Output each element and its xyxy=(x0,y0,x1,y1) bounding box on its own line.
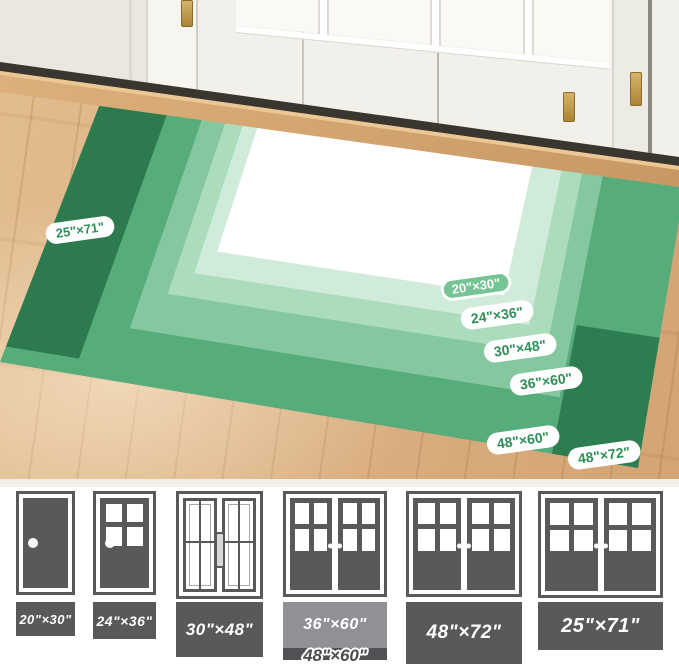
window-pane xyxy=(295,529,309,550)
window-pane xyxy=(418,529,435,550)
door-panel xyxy=(23,498,68,588)
door-window xyxy=(418,503,456,551)
door-window xyxy=(295,503,327,551)
french-door-panel xyxy=(222,498,256,592)
panel-mullion-horizontal xyxy=(225,541,253,543)
doormat: 25"×71" xyxy=(538,602,663,650)
sliding-door-panel xyxy=(604,498,657,591)
door-window xyxy=(343,503,375,551)
window-pane xyxy=(106,504,122,522)
window-pane xyxy=(574,530,593,552)
mat-size-label: 36"×60" xyxy=(303,616,367,634)
sliding-door-panel xyxy=(338,498,380,590)
size-chart-column: 36"×60"48"×60" xyxy=(283,491,387,597)
sliding-door-panel xyxy=(467,498,515,590)
window-pane xyxy=(362,529,376,550)
rug-size-overlay xyxy=(0,0,679,487)
door-diagram-single-window xyxy=(93,491,156,595)
door-knob xyxy=(28,538,38,548)
mat-area: 48"×72" xyxy=(406,602,522,664)
window-pane xyxy=(127,527,143,545)
window-pane xyxy=(418,503,435,524)
door-handle-dots xyxy=(594,544,608,549)
window-pane xyxy=(494,503,511,524)
mat-size-label: 30"×48" xyxy=(186,620,253,640)
door-diagram-sliding-double xyxy=(406,491,522,597)
door-size-chart: 20"×30"24"×36"30"×48"36"×60"48"×60"48"×7… xyxy=(0,487,679,671)
doormat: 36"×60" xyxy=(283,602,387,648)
window-pane xyxy=(314,529,328,550)
door-diagram-sliding-double xyxy=(283,491,387,597)
mat-area: 30"×48" xyxy=(176,602,263,657)
window-pane xyxy=(632,530,651,552)
doormat: 48"×72" xyxy=(406,602,522,664)
door-window xyxy=(550,503,593,551)
mat-size-label: 24"×36" xyxy=(96,613,152,629)
door-window xyxy=(609,503,652,551)
window-pane xyxy=(550,530,569,552)
product-image: 25"×71"20"×30"24"×36"30"×48"36"×60"48"×6… xyxy=(0,0,679,671)
handle-dot xyxy=(594,544,599,549)
handle-dot xyxy=(328,543,333,548)
window-pane xyxy=(343,503,357,524)
size-chart-column: 25"×71" xyxy=(538,491,663,598)
mat-size-label-behind: 48"×60" xyxy=(283,646,387,666)
window-pane xyxy=(440,503,457,524)
sliding-door-panels xyxy=(413,498,515,590)
window-pane xyxy=(440,529,457,550)
sliding-door-panels xyxy=(290,498,380,590)
door-window xyxy=(472,503,510,551)
mat-size-label: 20"×30" xyxy=(19,612,71,627)
size-chart-column: 24"×36" xyxy=(93,491,156,595)
window-pane xyxy=(574,503,593,525)
mat-area: 24"×36" xyxy=(93,602,156,639)
window-pane xyxy=(609,503,628,525)
window-pane xyxy=(343,529,357,550)
panel-mullion-vertical xyxy=(238,501,240,589)
door-handle xyxy=(215,532,225,568)
handle-dot xyxy=(603,544,608,549)
panel-mullion-vertical xyxy=(199,501,201,589)
window-pane xyxy=(127,504,143,522)
french-door-panels xyxy=(183,498,256,592)
mat-size-label: 48"×72" xyxy=(427,622,502,644)
door-diagram-sliding-double xyxy=(538,491,663,598)
window-pane xyxy=(295,503,309,524)
mat-size-label: 25"×71" xyxy=(561,615,640,638)
window-pane xyxy=(609,530,628,552)
door-panel xyxy=(100,498,149,588)
size-chart-column: 20"×30" xyxy=(16,491,75,595)
window-pane xyxy=(362,503,376,524)
panel-mullion-horizontal xyxy=(186,541,214,543)
mat-area: 20"×30" xyxy=(16,602,75,636)
size-chart-column: 30"×48" xyxy=(176,491,263,599)
window-pane xyxy=(472,503,489,524)
doormat: 30"×48" xyxy=(176,602,263,657)
door-diagram-french-double xyxy=(176,491,263,599)
handle-dot xyxy=(337,543,342,548)
door-knob xyxy=(105,538,115,548)
mat-area: 25"×71" xyxy=(538,602,663,650)
sliding-door-panel xyxy=(413,498,461,590)
photo-bottom-fade xyxy=(0,479,679,487)
door-handle-dots xyxy=(457,543,471,548)
mat-area: 36"×60"48"×60" xyxy=(283,602,387,648)
window-pane xyxy=(632,503,651,525)
handle-dot xyxy=(457,543,462,548)
window-pane xyxy=(494,529,511,550)
size-chart-column: 48"×72" xyxy=(406,491,522,597)
doorway-photo: 25"×71"20"×30"24"×36"30"×48"36"×60"48"×6… xyxy=(0,0,679,487)
window-pane xyxy=(314,503,328,524)
sliding-door-panel xyxy=(545,498,598,591)
handle-dot xyxy=(466,543,471,548)
sliding-door-panel xyxy=(290,498,332,590)
door-handle-dots xyxy=(328,543,342,548)
window-pane xyxy=(550,503,569,525)
window-pane xyxy=(472,529,489,550)
sliding-door-panels xyxy=(545,498,656,591)
doormat: 20"×30" xyxy=(16,602,75,636)
french-door-panel xyxy=(183,498,217,592)
door-diagram-single-solid xyxy=(16,491,75,595)
doormat: 24"×36" xyxy=(93,602,156,639)
